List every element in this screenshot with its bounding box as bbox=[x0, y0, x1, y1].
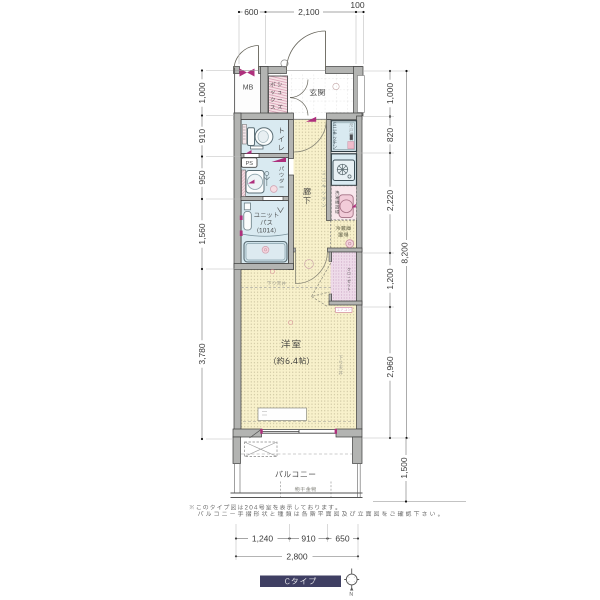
svg-text:PS: PS bbox=[246, 161, 254, 167]
svg-text:2,100: 2,100 bbox=[298, 7, 320, 17]
svg-text:820: 820 bbox=[385, 128, 395, 142]
svg-text:650: 650 bbox=[335, 534, 349, 544]
svg-text:3,780: 3,780 bbox=[197, 343, 207, 365]
svg-text:1,000: 1,000 bbox=[385, 83, 395, 105]
svg-text:950: 950 bbox=[197, 170, 207, 184]
svg-text:1,500: 1,500 bbox=[399, 457, 409, 479]
svg-text:100: 100 bbox=[350, 0, 364, 10]
svg-text:8,200: 8,200 bbox=[399, 242, 409, 264]
svg-text:910: 910 bbox=[301, 534, 315, 544]
svg-text:910: 910 bbox=[197, 129, 207, 143]
svg-text:600: 600 bbox=[244, 7, 258, 17]
svg-text:2,960: 2,960 bbox=[385, 356, 395, 378]
svg-text:1,240: 1,240 bbox=[252, 534, 274, 544]
svg-text:2,800: 2,800 bbox=[286, 551, 308, 561]
svg-text:1,560: 1,560 bbox=[197, 223, 207, 245]
svg-text:2,220: 2,220 bbox=[385, 190, 395, 212]
svg-text:1,000: 1,000 bbox=[197, 82, 207, 104]
svg-text:1,200: 1,200 bbox=[385, 268, 395, 290]
svg-text:MB: MB bbox=[243, 85, 254, 92]
